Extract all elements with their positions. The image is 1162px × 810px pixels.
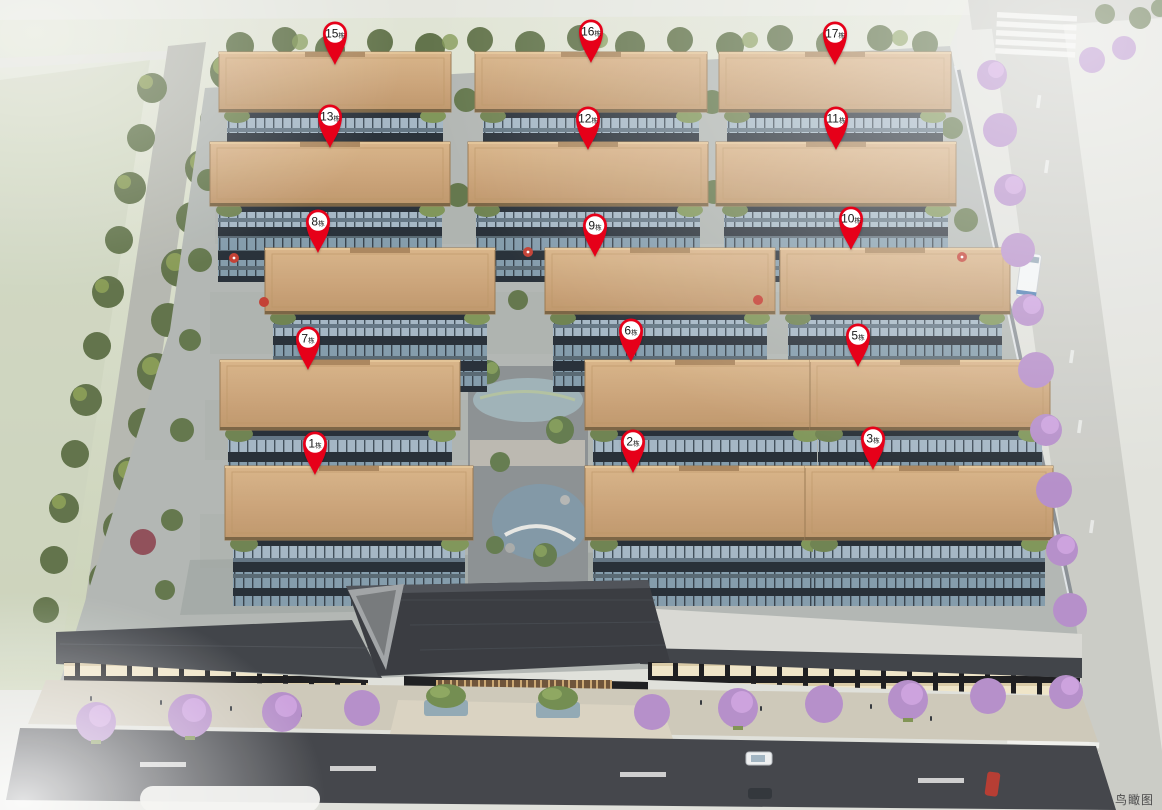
building-pin-8[interactable]: 8栋 — [303, 207, 333, 255]
building-pin-10[interactable]: 10栋 — [836, 204, 866, 252]
building-pin-12[interactable]: 12栋 — [573, 104, 603, 152]
building-pin-1[interactable]: 1栋 — [300, 429, 330, 477]
building-pin-2[interactable]: 2栋 — [618, 427, 648, 475]
building-pin-5[interactable]: 5栋 — [843, 321, 873, 369]
building-pin-15[interactable]: 15栋 — [320, 19, 350, 67]
building-pin-16[interactable]: 16栋 — [576, 17, 606, 65]
building-pin-7[interactable]: 7栋 — [293, 324, 323, 372]
building-pin-11[interactable]: 11栋 — [821, 104, 851, 152]
building-pin-13[interactable]: 13栋 — [315, 102, 345, 150]
aerial-view: 15栋16栋17栋13栋12栋11栋8栋9栋10栋7栋6栋5栋1栋2栋3栋 鸟瞰… — [0, 0, 1162, 810]
building-pin-6[interactable]: 6栋 — [616, 316, 646, 364]
watermark: 鸟瞰图 — [1115, 791, 1154, 808]
building-pin-3[interactable]: 3栋 — [858, 424, 888, 472]
building-pin-17[interactable]: 17栋 — [820, 19, 850, 67]
building-pins-layer: 15栋16栋17栋13栋12栋11栋8栋9栋10栋7栋6栋5栋1栋2栋3栋 — [0, 0, 1162, 810]
building-pin-9[interactable]: 9栋 — [580, 211, 610, 259]
